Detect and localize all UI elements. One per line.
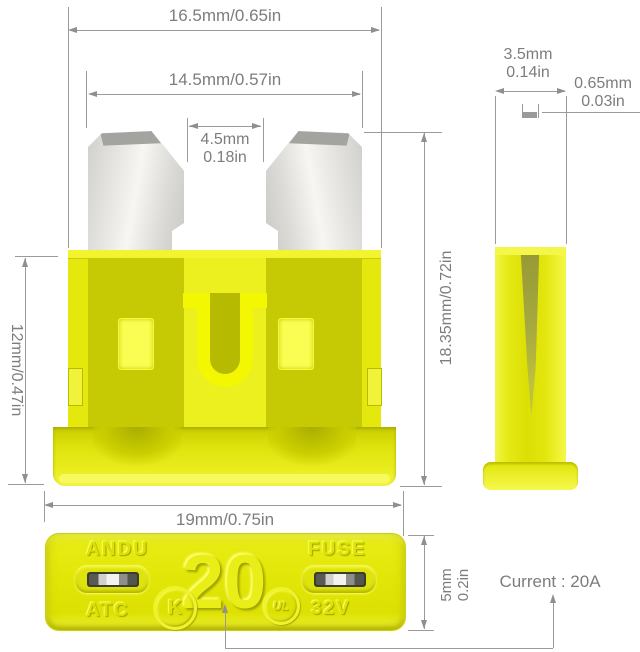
dim-total-height-line	[424, 133, 425, 485]
top-face-view: ANDU FUSE ATC 32V 20 K UL	[0, 530, 640, 652]
dim-top-thickness-label: 5mm 0.2in	[438, 555, 472, 615]
arrowhead	[421, 476, 427, 485]
fuse-base	[53, 427, 396, 486]
dim-blade-gap-in-label: 0.18in	[165, 149, 285, 167]
dim-blade-thickness-mm-label: 0.65mm	[553, 75, 640, 93]
dim-total-height-label: 18.35mm/0.72in	[438, 233, 456, 383]
brand-marking: ANDU	[86, 539, 149, 561]
left-side-notch	[68, 368, 83, 406]
arrowhead	[44, 502, 53, 508]
series-marking: ATC	[86, 600, 130, 622]
left-slot-cavity	[87, 572, 139, 587]
base-arch-right	[268, 427, 356, 467]
voltage-marking: 32V	[311, 598, 351, 620]
extension-line	[408, 630, 434, 631]
dim-blade-thickness-in-label: 0.03in	[553, 93, 640, 111]
tick-line	[538, 104, 539, 118]
arrowhead	[421, 536, 427, 545]
arrowhead	[421, 133, 427, 142]
dim-base-width-label: 19mm/0.75in	[125, 510, 325, 530]
arrowhead	[22, 258, 28, 267]
side-element-shadow	[517, 255, 543, 415]
right-blade-slot	[302, 565, 376, 593]
k-cert-icon: K	[153, 586, 197, 630]
right-window	[278, 318, 314, 370]
tick-line	[522, 104, 523, 118]
leader-line-vertical-left	[225, 611, 226, 648]
side-view: 3.5mm 0.14in 0.65mm 0.03in	[460, 0, 640, 530]
dim-base-width-line	[46, 505, 401, 506]
extension-line	[400, 486, 442, 487]
leader-line-horizontal	[225, 648, 553, 649]
dim-top-thickness-mm: 5mm	[438, 555, 455, 615]
ul-cert-glyph: UL	[273, 599, 289, 613]
extension-line	[44, 491, 45, 522]
extension-line	[408, 535, 434, 536]
extension-line	[566, 96, 567, 244]
fuse-element-u	[197, 293, 253, 387]
extension-line	[364, 132, 442, 133]
left-slot-blade-metal	[89, 574, 137, 585]
arrowhead	[88, 91, 97, 97]
extension-line	[15, 256, 58, 257]
fuse-marking: FUSE	[308, 539, 367, 561]
arrowhead	[495, 88, 504, 94]
right-slot-blade-metal	[316, 574, 364, 585]
side-housing	[495, 247, 566, 463]
dim-top-thickness-line	[424, 536, 425, 629]
left-blade-slot	[75, 565, 149, 593]
fuse-dimension-diagram: 16.5mm/0.65in 14.5mm/0.57in 4.5mm 0.18in…	[0, 0, 640, 652]
dim-body-height-line	[25, 258, 26, 483]
base-bottom-highlight	[59, 474, 390, 483]
dim-blade-span-label: 14.5mm/0.57in	[120, 70, 330, 90]
arrowhead	[550, 594, 556, 603]
side-blade-terminal	[523, 112, 537, 252]
extension-line	[86, 71, 87, 128]
extension-line	[381, 7, 382, 248]
extension-line	[68, 7, 69, 248]
dim-top-width-label: 16.5mm/0.65in	[120, 6, 330, 26]
dim-blade-span-line	[90, 94, 360, 95]
side-base	[483, 462, 578, 490]
arrowhead	[371, 27, 380, 33]
right-slot-cavity	[314, 572, 366, 587]
extension-line	[8, 484, 44, 485]
current-rating-label: Current : 20A	[480, 572, 620, 592]
dim-side-width-mm-label: 3.5mm	[478, 46, 578, 64]
front-view: 16.5mm/0.65in 14.5mm/0.57in 4.5mm 0.18in…	[0, 0, 460, 530]
dim-top-width-line	[70, 30, 379, 31]
dim-blade-thickness-leader	[542, 112, 640, 113]
dim-blade-gap-line	[189, 126, 261, 127]
extension-line	[495, 96, 496, 244]
dim-top-thickness-in: 0.2in	[455, 555, 472, 615]
arrowhead	[421, 620, 427, 629]
side-housing-top-highlight	[495, 247, 566, 255]
dim-blade-gap-mm-label: 4.5mm	[165, 131, 285, 149]
arrowhead	[22, 474, 28, 483]
arrowhead	[393, 502, 402, 508]
dim-body-height-label: 12mm/0.47in	[7, 310, 25, 430]
base-arch-left	[93, 427, 181, 467]
fuse-housing	[68, 250, 381, 427]
extension-line	[362, 71, 363, 128]
right-side-notch	[367, 368, 382, 406]
side-blade-top-edge	[523, 112, 537, 118]
arrowhead	[352, 91, 361, 97]
k-cert-glyph: K	[168, 597, 182, 620]
ul-cert-icon: UL	[262, 587, 300, 625]
leader-line-vertical-right	[553, 600, 554, 648]
arrowhead	[189, 123, 198, 129]
arrowhead	[68, 27, 77, 33]
arrowhead	[252, 123, 261, 129]
left-window	[118, 318, 154, 370]
